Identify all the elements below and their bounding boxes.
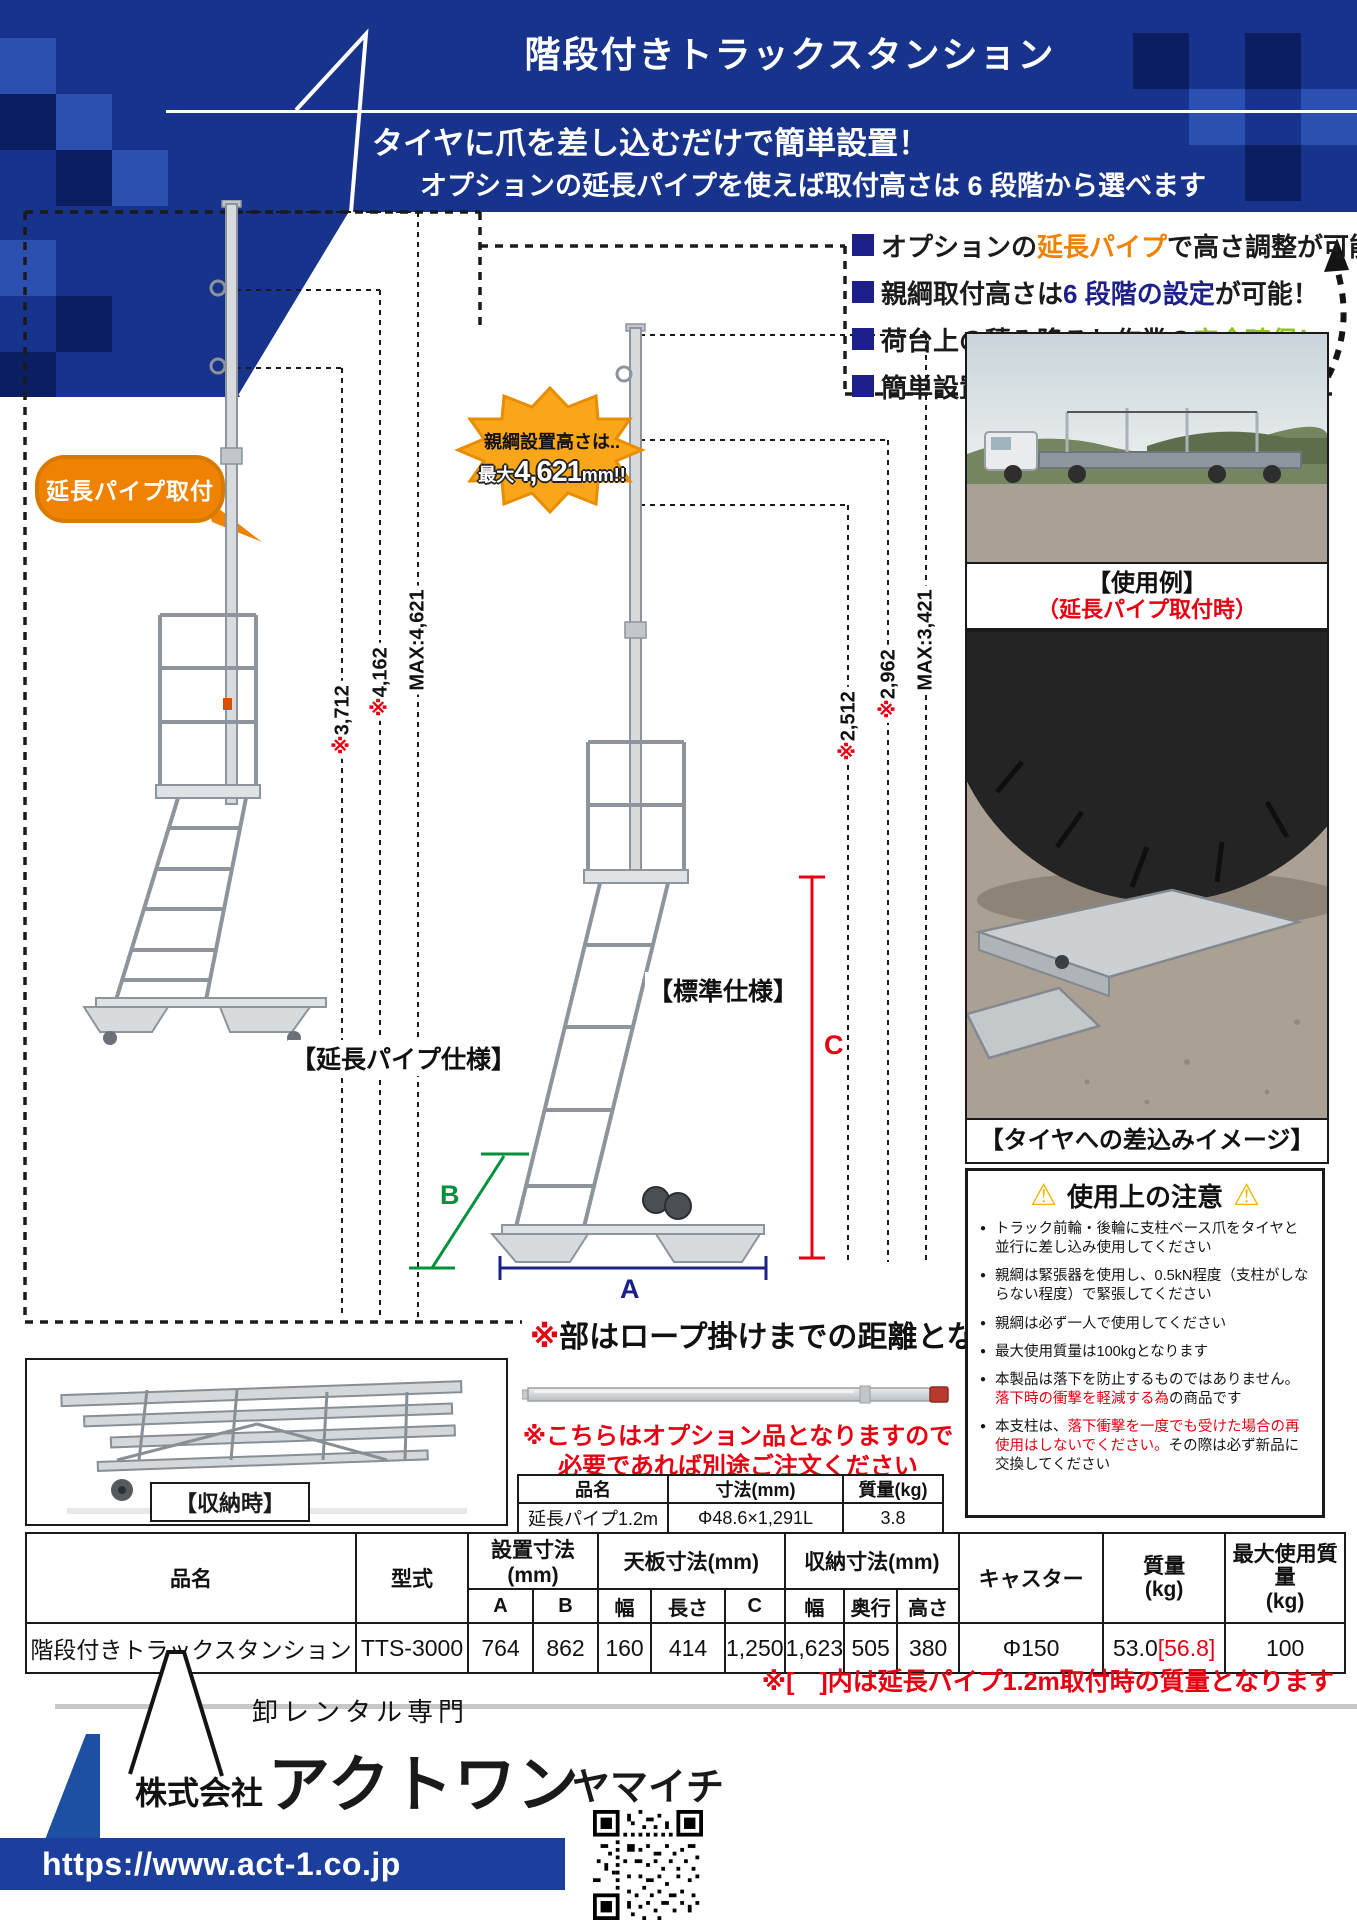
tire-insert-photo [965, 630, 1329, 1120]
dimension-letter-a: A [618, 1274, 642, 1305]
spec-h-name: 品名 [26, 1533, 356, 1623]
spec-h-install: 設置寸法(mm) [468, 1533, 598, 1589]
spec-model: TTS-3000 [356, 1623, 468, 1673]
figure-extended-drawing [60, 200, 380, 1050]
spec-bracket-note: ※[ ]内は延長パイプ1.2m取付時の質量となります [762, 1662, 1334, 1698]
footer-zigzag [118, 1642, 268, 1782]
spec-b: 862 [533, 1623, 598, 1673]
burst-line2: 最大4,621mm!! [458, 456, 646, 489]
warning-triangle-icon: ⚠ [1030, 1181, 1057, 1211]
spec-sub-length: 長さ [651, 1589, 725, 1623]
bubble-label: 延長パイプ取付 [46, 472, 214, 506]
spec-h-max: 最大使用質量(kg) [1225, 1533, 1345, 1623]
footer-tagline: 卸レンタル専門 [252, 1692, 469, 1729]
option-table-row: 延長パイプ1.2m Φ48.6×1,291L 3.8 [518, 1503, 943, 1533]
option-col-weight: 質量(kg) [843, 1475, 943, 1503]
dimension-label: MAX:3,421 [915, 585, 938, 694]
spec-sub-height: 高さ [897, 1589, 959, 1623]
spec-l1: 414 [651, 1623, 725, 1673]
qr-code [592, 1810, 704, 1920]
url-bar: https://www.act-1.co.jp [0, 1838, 565, 1890]
storage-caption: 【収納時】 [150, 1482, 310, 1522]
warning-item: 最大使用質量は100kgとなります [980, 1343, 1310, 1362]
warning-item: 親綱は緊張器を使用し、0.5kN程度（支柱がしならない程度）で緊張してください [980, 1267, 1310, 1305]
caption-usage-sub: （延長パイプ取付時） [1037, 597, 1257, 622]
usage-example-photo [965, 332, 1329, 564]
dimension-label: ※2,962 [876, 645, 901, 723]
square-bullet-icon [852, 375, 874, 397]
square-bullet-icon [852, 281, 874, 303]
warning-item: トラック前輪・後輪に支柱ベース爪をタイヤと並行に差し込み使用してください [980, 1220, 1310, 1258]
option-weight: 3.8 [843, 1503, 943, 1533]
option-col-size: 寸法(mm) [668, 1475, 843, 1503]
option-size: Φ48.6×1,291L [668, 1503, 843, 1533]
company-prefix: 株式会社 [135, 1768, 263, 1814]
warning-item: 親綱は必ず一人で使用してください [980, 1315, 1310, 1334]
dimension-label: ※2,512 [836, 687, 861, 765]
company-name: アクトワン [268, 1734, 580, 1824]
burst-line1: 親綱設置高さは.. [466, 428, 638, 454]
spec-h-storage: 収納寸法(mm) [785, 1533, 960, 1589]
usage-warning-panel: ⚠ 使用上の注意 ⚠ トラック前輪・後輪に支柱ベース爪をタイヤと並行に差し込み使… [965, 1168, 1325, 1518]
dimension-letter-b: B [438, 1180, 462, 1211]
flyer-page: 階段付きトラックスタンション タイヤに爪を差し込むだけで簡単設置！ オプションの… [0, 0, 1357, 1920]
square-bullet-icon [852, 234, 874, 256]
spec-sub-width1: 幅 [598, 1589, 651, 1623]
option-col-name: 品名 [518, 1475, 668, 1503]
spec-sub-width2: 幅 [785, 1589, 845, 1623]
warning-title-row: ⚠ 使用上の注意 ⚠ [980, 1177, 1310, 1214]
caption-extended-spec: 【延長パイプ仕様】 [288, 1040, 519, 1076]
warning-item: 本製品は落下を防止するものではありません。落下時の衝撃を軽減する為の商品です [980, 1371, 1310, 1409]
spec-sub-b: B [533, 1589, 598, 1623]
tire-insert-caption: 【タイヤへの差込みイメージ】 [965, 1118, 1329, 1164]
extension-pipe-image [522, 1382, 954, 1408]
option-name: 延長パイプ1.2m [518, 1503, 668, 1533]
warning-triangle-icon: ⚠ [1233, 1181, 1260, 1211]
feature-item: オプションの延長パイプで高さ調整が可能！ [852, 228, 1352, 262]
dimension-label: ※4,162 [368, 643, 393, 721]
spec-h-model: 型式 [356, 1533, 468, 1623]
website-link[interactable]: https://www.act-1.co.jp [42, 1846, 401, 1883]
spec-w1: 160 [598, 1623, 651, 1673]
spec-sub-depth: 奥行 [844, 1589, 897, 1623]
square-bullet-icon [852, 328, 874, 350]
spec-a: 764 [468, 1623, 533, 1673]
spec-h-top: 天板寸法(mm) [598, 1533, 785, 1589]
spec-h-weight: 質量(kg) [1103, 1533, 1225, 1623]
extension-pipe-bubble: 延長パイプ取付 [35, 455, 225, 523]
spec-sub-a: A [468, 1589, 533, 1623]
dimension-label: MAX:4,621 [407, 585, 430, 694]
caption-standard-spec: 【標準仕様】 [645, 972, 801, 1008]
option-table: 品名 寸法(mm) 質量(kg) 延長パイプ1.2m Φ48.6×1,291L … [517, 1474, 944, 1534]
caption-usage: 【使用例】 [1087, 570, 1207, 598]
usage-example-caption: 【使用例】 （延長パイプ取付時） [965, 562, 1329, 630]
company-name-suffix: ヤマイチ [572, 1756, 724, 1811]
dimension-letter-c: C [822, 1030, 846, 1061]
warning-item: 本支柱は、落下衝撃を一度でも受けた場合の再使用はしないでください。その際は必ず新… [980, 1418, 1310, 1475]
dimension-label: ※3,712 [330, 681, 355, 759]
spec-h-caster: キャスター [959, 1533, 1103, 1623]
caption-tire: 【タイヤへの差込みイメージ】 [980, 1127, 1315, 1155]
feature-item: 親綱取付高さは 6 段階の設定が可能！ [852, 275, 1352, 309]
warning-title: 使用上の注意 [1067, 1177, 1223, 1214]
spec-sub-c: C [725, 1589, 785, 1623]
